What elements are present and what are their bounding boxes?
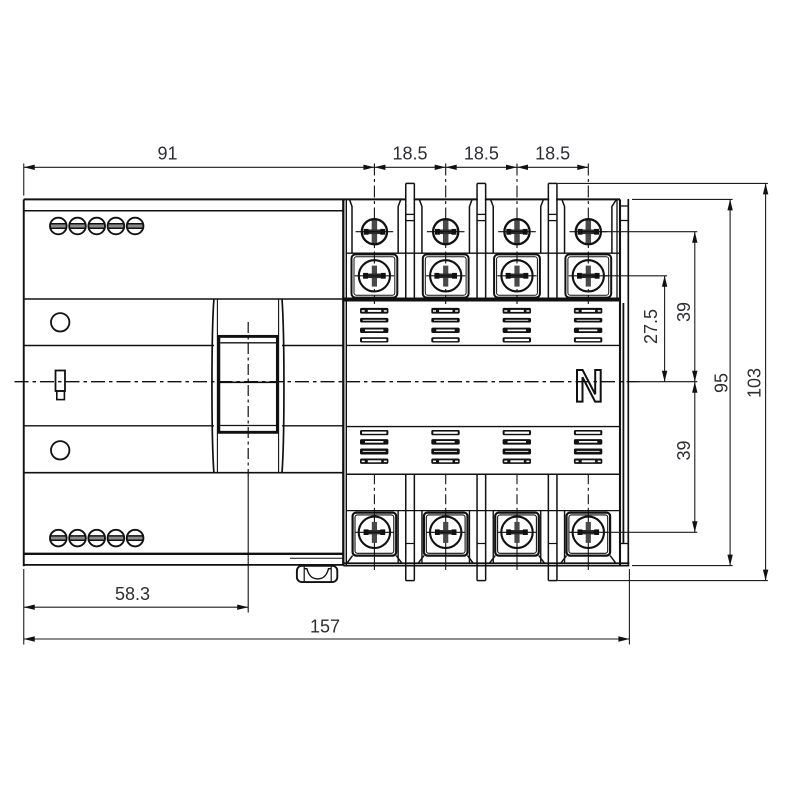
- svg-text:58.3: 58.3: [115, 584, 150, 604]
- svg-text:18.5: 18.5: [464, 144, 499, 164]
- svg-text:91: 91: [157, 144, 177, 164]
- svg-text:27.5: 27.5: [641, 309, 661, 344]
- svg-text:18.5: 18.5: [393, 144, 428, 164]
- svg-text:18.5: 18.5: [535, 144, 570, 164]
- svg-text:95: 95: [712, 373, 732, 393]
- svg-text:39: 39: [674, 302, 694, 322]
- svg-text:157: 157: [310, 617, 340, 637]
- svg-text:39: 39: [674, 440, 694, 460]
- svg-text:103: 103: [745, 368, 765, 398]
